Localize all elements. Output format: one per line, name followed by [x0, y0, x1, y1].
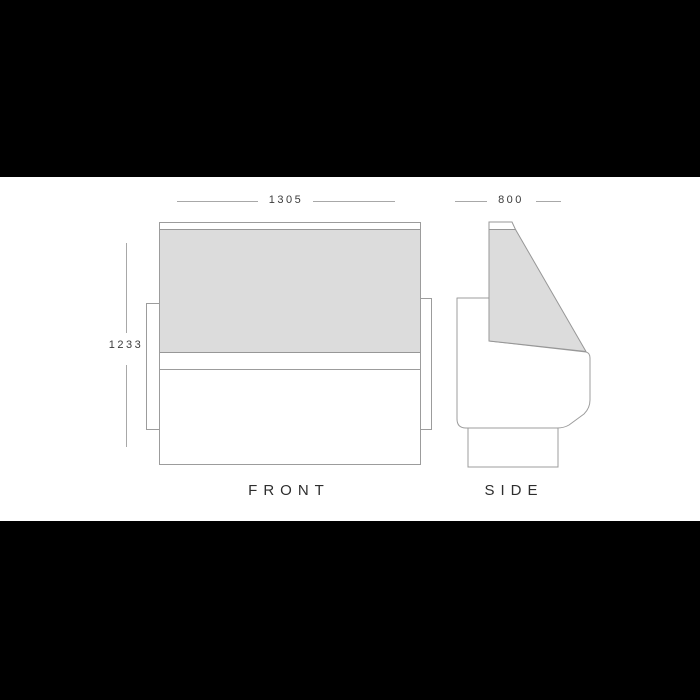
front-left-end-panel: [146, 303, 160, 430]
letterbox-top: [0, 0, 700, 177]
front-height-dimension-line-bottom: [126, 365, 127, 447]
letterbox-bottom: [0, 521, 700, 700]
front-width-dimension-line-right: [313, 201, 395, 202]
side-profile-drawing: [450, 215, 605, 475]
side-view-label: SIDE: [439, 482, 589, 500]
side-depth-dimension-line-right: [536, 201, 561, 202]
front-glass-panel: [160, 229, 420, 353]
screen: 1305 1233 FRONT 800: [0, 0, 700, 700]
side-canopy-strip: [489, 222, 516, 230]
front-worktop-divider-line: [160, 369, 420, 370]
front-right-end-panel: [420, 298, 432, 430]
side-plinth: [468, 428, 558, 467]
side-glass-panel: [489, 230, 586, 352]
front-height-dimension-line-top: [126, 243, 127, 333]
front-view-label: FRONT: [214, 482, 364, 500]
front-width-dimension-line-left: [177, 201, 258, 202]
front-height-dimension-value: 1233: [98, 339, 154, 352]
side-depth-dimension-value: 800: [483, 194, 539, 207]
front-width-dimension-value: 1305: [256, 194, 316, 207]
